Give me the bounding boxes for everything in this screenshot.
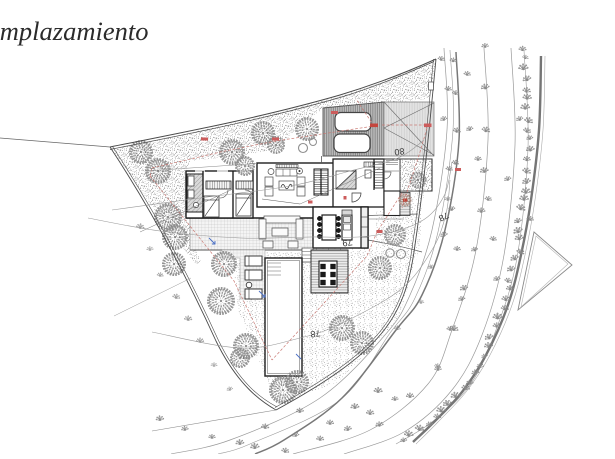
svg-text:emplazamiento: emplazamiento	[0, 16, 148, 46]
svg-text:78: 78	[310, 328, 321, 339]
svg-text:79: 79	[342, 237, 353, 248]
svg-text:80: 80	[394, 146, 405, 157]
